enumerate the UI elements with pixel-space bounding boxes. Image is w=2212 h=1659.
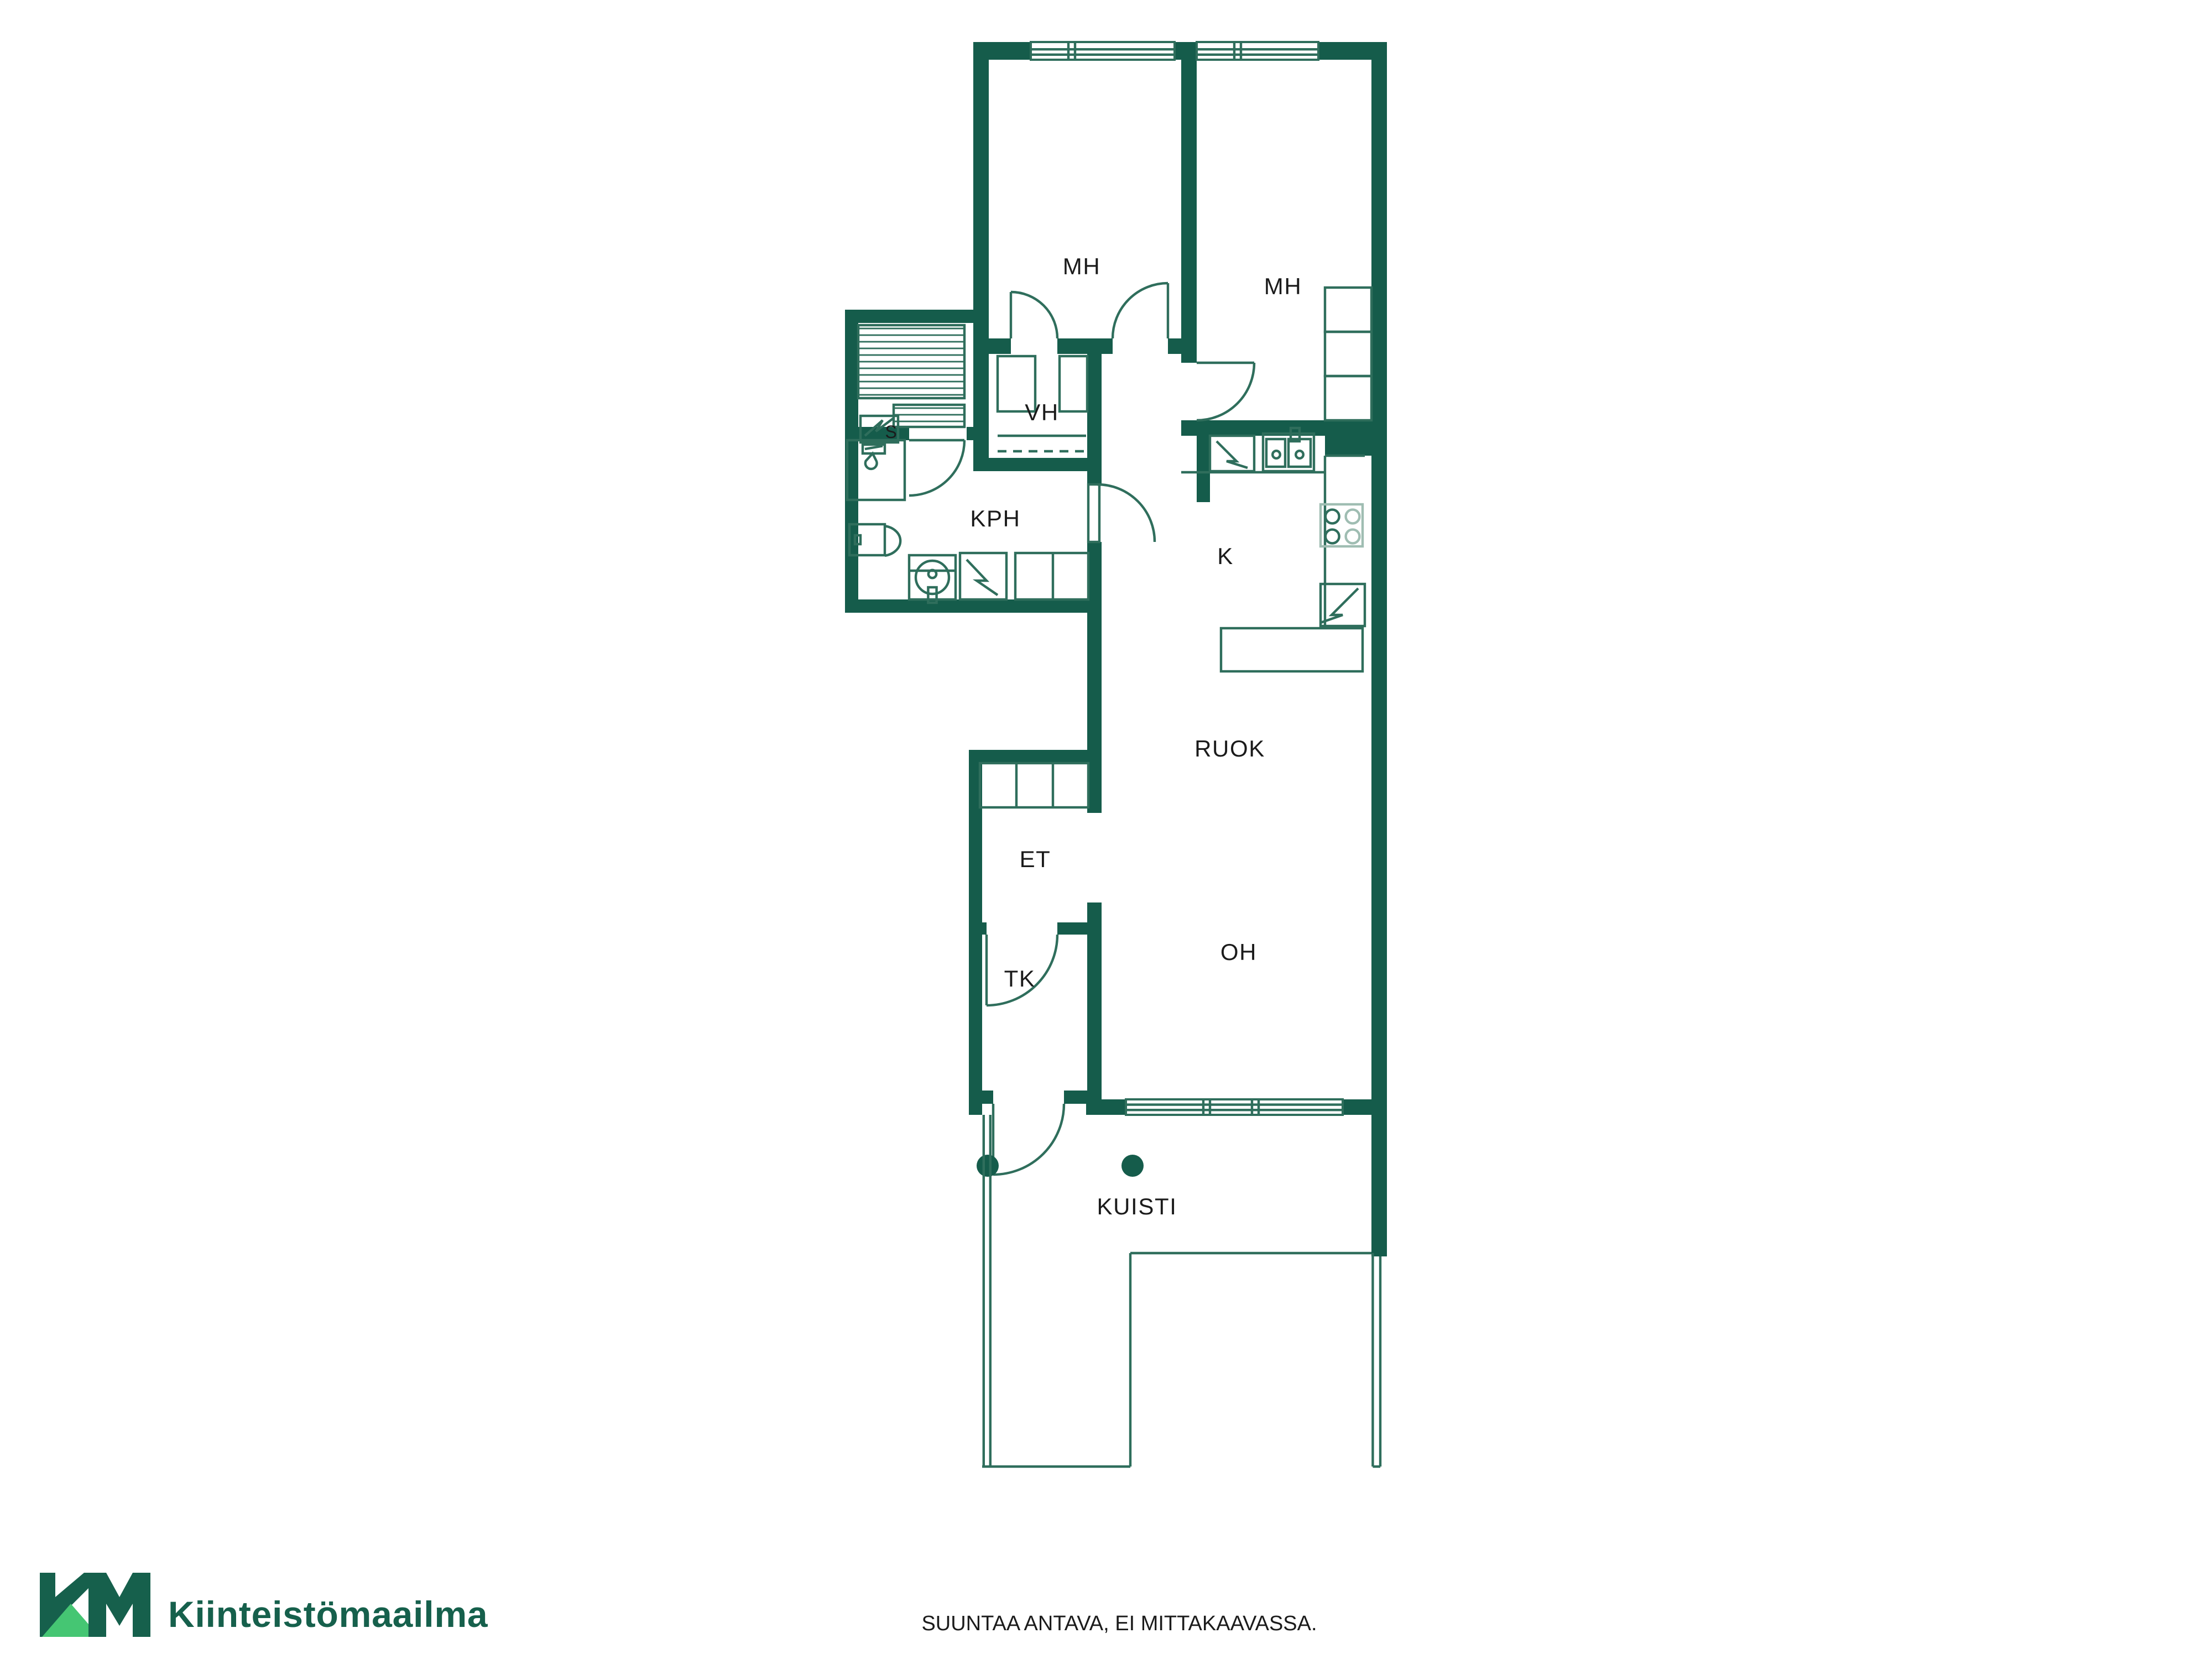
bathroom-cabinet	[1015, 553, 1088, 599]
door-kph	[1088, 484, 1155, 542]
dishwasher	[1321, 584, 1365, 626]
floor-plan-canvas: MH MH VH S KPH K RUOK ET TK OH KUISTI Ki…	[0, 0, 2212, 1659]
sauna-fixtures	[858, 325, 964, 442]
room-label-kitchen: K	[1217, 543, 1234, 569]
kitchen-sink	[1263, 428, 1314, 471]
shower-head-icon	[863, 445, 885, 469]
brand-name: Kiinteistömaailma	[168, 1594, 488, 1635]
room-label-mh2: MH	[1264, 273, 1302, 299]
porch-post-right	[1121, 1155, 1144, 1177]
door-mh1-right	[1113, 283, 1168, 338]
door-mh2	[1197, 363, 1254, 420]
room-label-vh: VH	[1025, 399, 1059, 425]
floorplan-page: MH MH VH S KPH K RUOK ET TK OH KUISTI Ki…	[0, 0, 2212, 1659]
washbasin	[909, 555, 956, 603]
stove	[1321, 504, 1363, 546]
fridge	[1210, 436, 1254, 471]
sauna-bench-low	[894, 405, 964, 427]
door-porch	[993, 1104, 1064, 1175]
porch-post-left	[977, 1155, 999, 1177]
disclaimer-text: SUUNTAA ANTAVA, EI MITTAKAAVASSA.	[921, 1612, 1317, 1635]
room-label-mh1: MH	[1063, 253, 1101, 279]
room-label-living: OH	[1220, 939, 1257, 965]
et-closet	[980, 763, 1088, 807]
washing-machine	[960, 553, 1006, 599]
brand-logo: Kiinteistömaailma	[40, 1573, 488, 1637]
room-label-entry: ET	[1020, 846, 1051, 872]
room-label-dining: RUOK	[1194, 735, 1265, 761]
walls	[845, 42, 1387, 1256]
door-sauna	[909, 440, 964, 495]
window-living-room	[1126, 1099, 1343, 1115]
km-logo-mark	[40, 1573, 150, 1637]
kitchen-island	[1221, 628, 1363, 671]
porch-structures	[977, 1115, 1380, 1467]
mh2-closet	[1325, 288, 1371, 420]
window-mh1	[1031, 42, 1175, 60]
room-label-sauna: S	[885, 422, 898, 442]
kitchen-fixtures	[1181, 428, 1365, 671]
room-label-kph: KPH	[970, 505, 1020, 531]
window-mh2	[1197, 42, 1318, 60]
room-label-tk: TK	[1004, 966, 1036, 992]
door-mh1-left	[1011, 292, 1057, 338]
closet-fixtures	[980, 288, 1371, 807]
room-label-porch: KUISTI	[1097, 1193, 1177, 1219]
sauna-bench	[858, 325, 964, 398]
